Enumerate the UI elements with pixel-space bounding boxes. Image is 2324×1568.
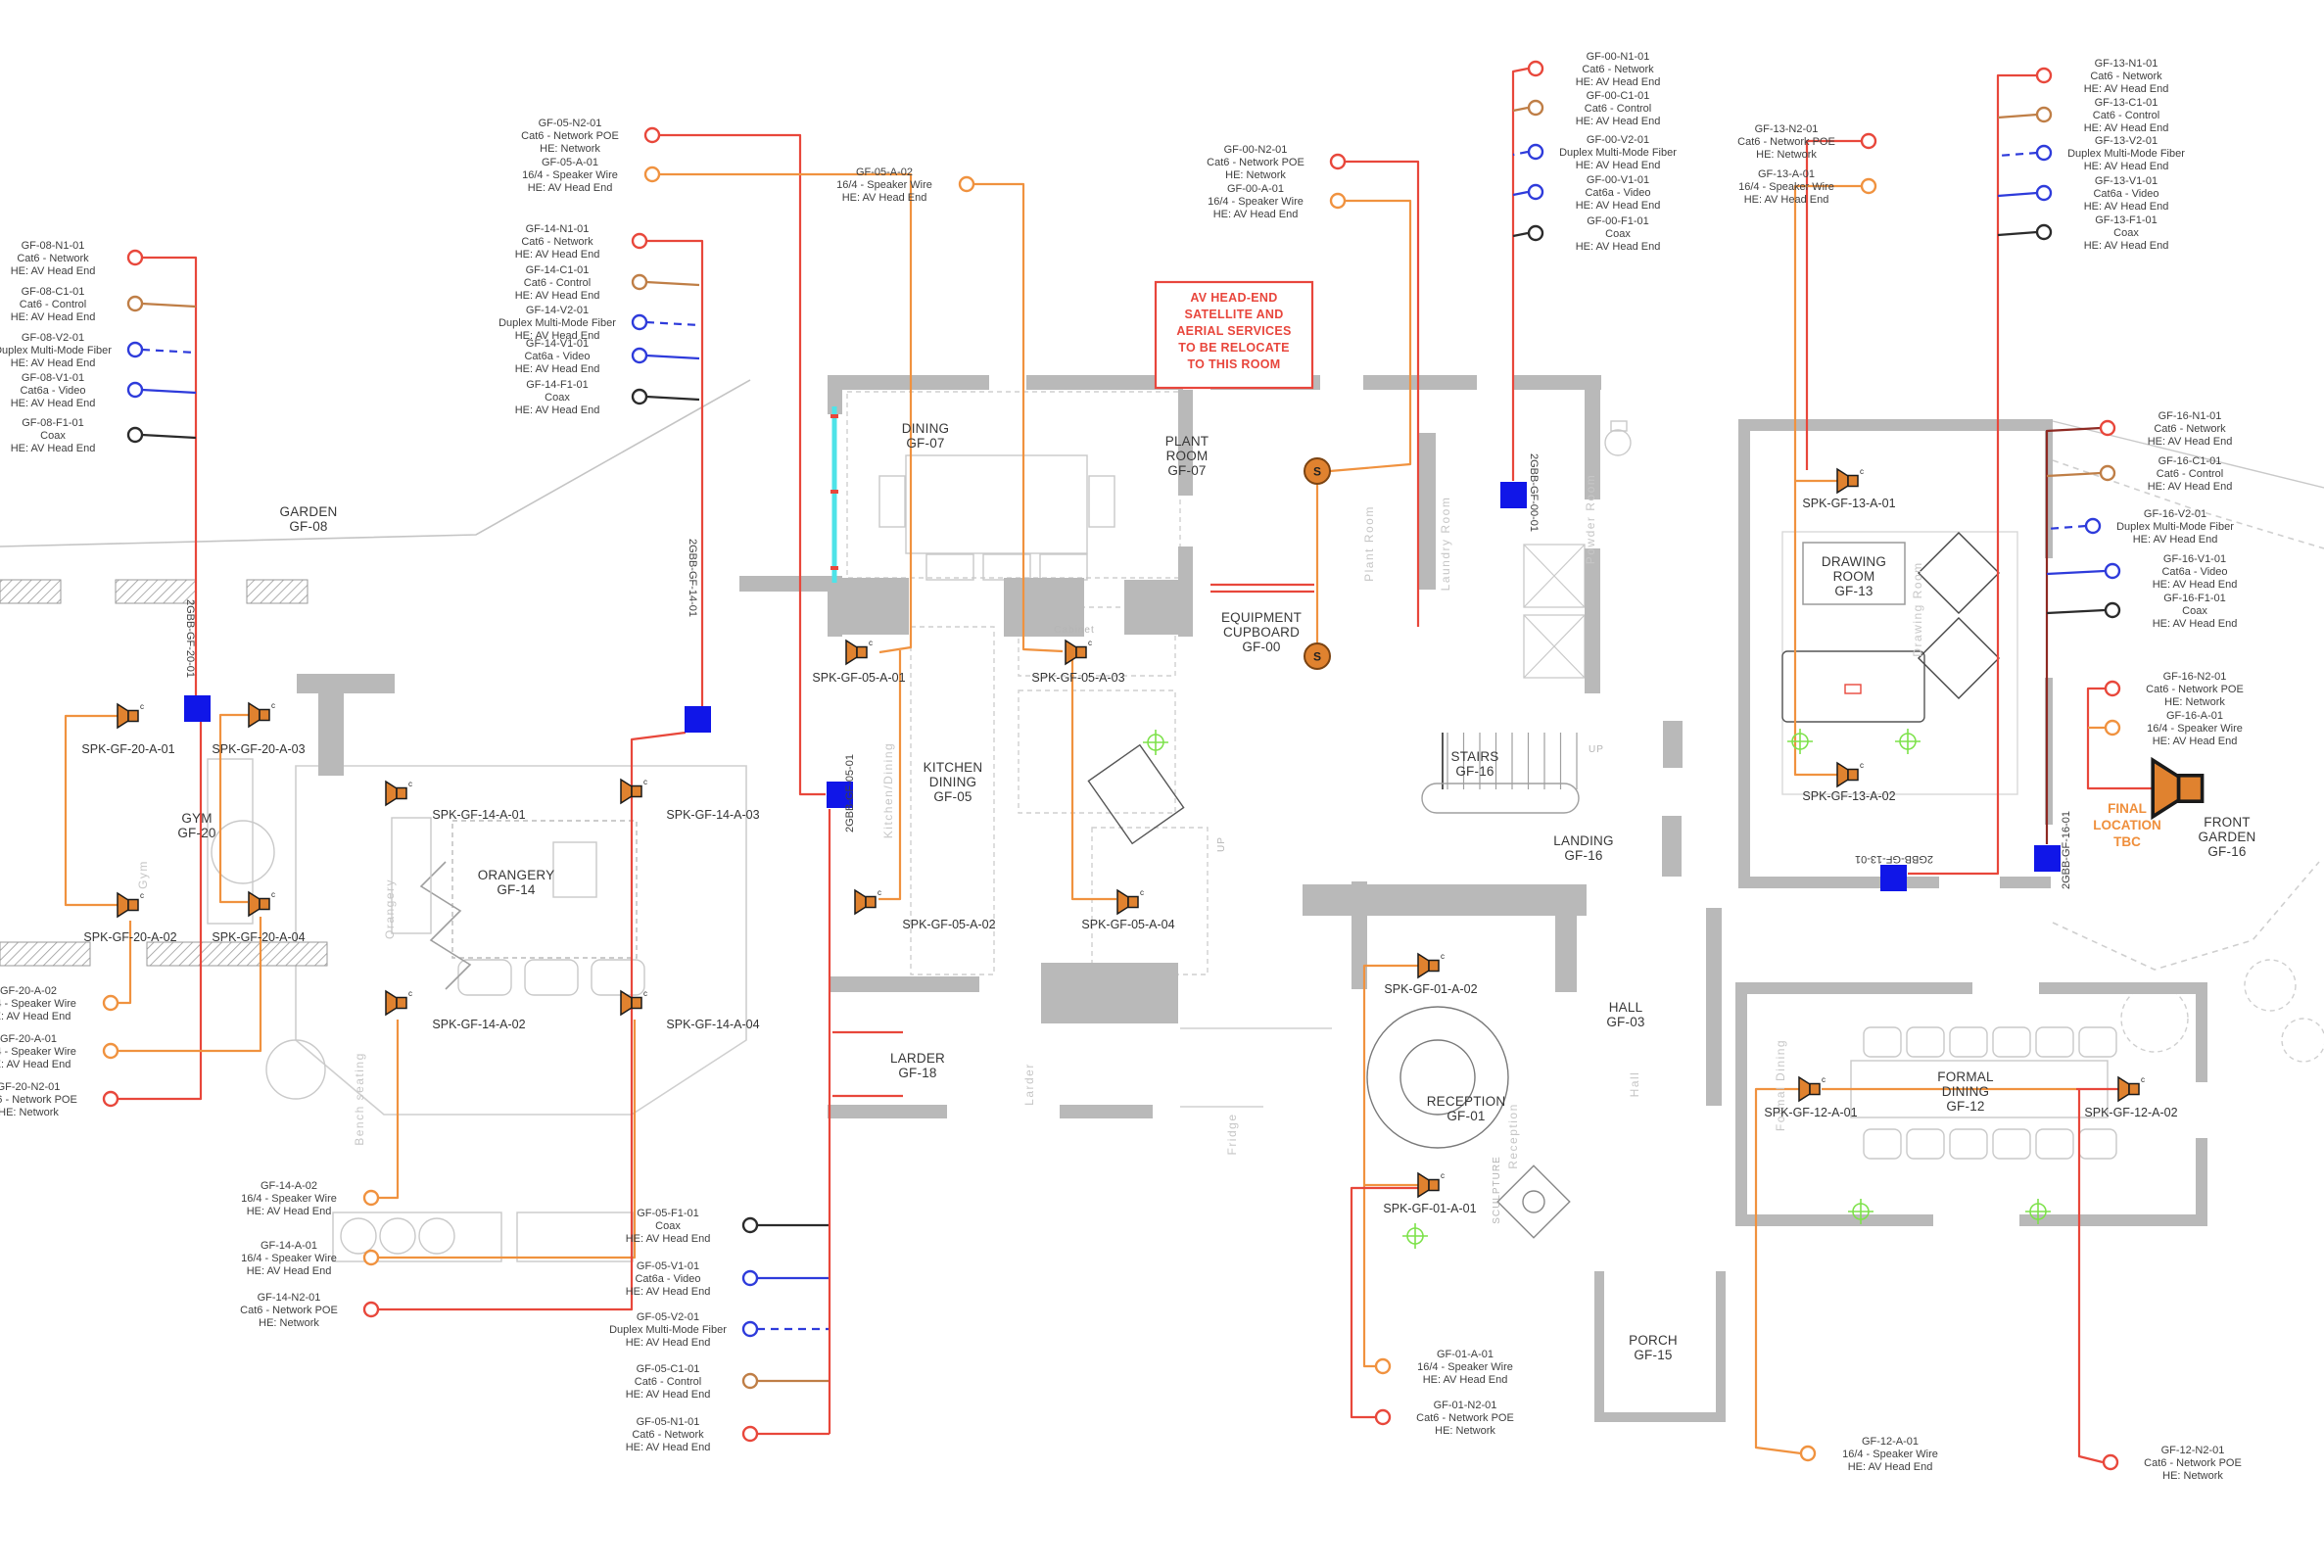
wall (739, 576, 842, 592)
cable-headend: HE: AV Head End (626, 1233, 711, 1245)
room-label: GF-15 (1634, 1348, 1672, 1362)
speaker-icon (1418, 1173, 1439, 1197)
hatch-wall (0, 942, 90, 966)
cable-circle (633, 349, 646, 362)
room-label: GYM (181, 811, 212, 826)
speaker-horn (249, 892, 260, 916)
note-av-headend-line: AV HEAD-END (1190, 291, 1277, 305)
room-label: LANDING (1553, 833, 1613, 848)
cable-type: 16/4 - Speaker Wire (836, 179, 932, 191)
room-label: HALL (1609, 1000, 1643, 1015)
speaker-back (128, 900, 138, 911)
furniture (1605, 430, 1631, 455)
room-label: DRAWING (1822, 554, 1886, 569)
cable-circle (364, 1303, 378, 1316)
cable-id: GF-00-V2-01 (1587, 134, 1649, 146)
furniture (0, 380, 750, 546)
room-label: PLANT (1165, 434, 1209, 449)
cable-wire-brown (142, 304, 196, 307)
window-tick (830, 414, 838, 418)
speaker-icon (386, 991, 406, 1015)
wall (1513, 375, 1601, 390)
vertical-room-label: Gym (136, 860, 150, 889)
cable-circle (633, 234, 646, 248)
furniture (1845, 685, 1861, 693)
wall (1716, 1271, 1726, 1420)
speaker-c-tag: c (869, 639, 873, 647)
speaker-icon (249, 703, 269, 727)
speaker-back (397, 998, 406, 1009)
cable-headend: HE: Network (540, 143, 600, 155)
speaker-c-tag: c (140, 702, 144, 711)
furniture (906, 455, 1087, 553)
speaker-icon (1837, 763, 1858, 786)
speaker-back (1848, 476, 1858, 487)
cable-type: Cat6 - Control (524, 277, 591, 289)
cable-id: GF-14-C1-01 (526, 264, 590, 276)
cable-wire-brown (646, 282, 699, 285)
furniture (452, 821, 637, 958)
cable-wire-red (1346, 162, 1418, 627)
speaker-icon (1799, 1077, 1820, 1101)
furniture-chair (2036, 1129, 2073, 1159)
room-label: GF-07 (1167, 463, 1206, 478)
cable-headend: HE: AV Head End (2148, 436, 2233, 448)
furniture (208, 759, 253, 924)
cable-circle (743, 1374, 757, 1388)
cable-type: Coax (2182, 605, 2207, 617)
cable-headend: HE: Network (259, 1317, 319, 1329)
speaker-horn (621, 780, 632, 803)
cable-type: Coax (40, 430, 66, 442)
room-label: STAIRS (1451, 749, 1499, 764)
satellite-label: S (1313, 465, 1321, 479)
cable-type: Cat6 - Control (1585, 103, 1651, 115)
speaker-back (1810, 1084, 1820, 1095)
network-point-label: 2GBB-GF-20-01 (184, 599, 196, 678)
speaker-label: SPK-GF-13-A-01 (1802, 497, 1895, 510)
cable-type: Cat6a - Video (20, 385, 85, 397)
cable-circle (104, 1044, 118, 1058)
cable-type: Cat6a - Video (2093, 188, 2158, 200)
cable-type: Cat6a - Video (524, 351, 590, 362)
cable-id: GF-14-A-01 (261, 1240, 317, 1252)
cable-type: Cat6 - Control (635, 1376, 701, 1388)
vertical-room-label: Hall (1628, 1071, 1641, 1098)
cable-wire-bluedash (646, 322, 699, 325)
wall (1060, 1105, 1153, 1118)
cable-headend: HE: AV Head End (626, 1286, 711, 1298)
cable-type: Cat6 - Control (2093, 110, 2159, 121)
satellite-label: S (1313, 650, 1321, 664)
cable-id: GF-14-F1-01 (526, 379, 589, 391)
furniture (2053, 862, 2319, 970)
cable-headend: HE: AV Head End (11, 398, 96, 409)
cable-headend: HE: AV Head End (2148, 481, 2233, 493)
speaker-label: SPK-GF-01-A-01 (1383, 1202, 1476, 1215)
cable-type: Cat6a - Video (2161, 566, 2227, 578)
cable-id: GF-13-A-01 (1758, 168, 1815, 180)
cable-id: GF-13-V1-01 (2095, 175, 2158, 187)
cable-type: Cat6 - Network POE (2144, 1457, 2242, 1469)
network-point-label: 2GBB-GF-05-01 (844, 754, 856, 832)
furniture (458, 960, 511, 995)
speaker-back (1429, 961, 1439, 972)
cable-id: GF-08-C1-01 (22, 286, 85, 298)
vertical-room-label: Reception (1506, 1103, 1520, 1169)
floor-plan-svg: GymOrangeryKitchen/DiningBench seatingLa… (0, 0, 2324, 1568)
cable-headend: HE: AV Head End (515, 290, 600, 302)
speaker-back (632, 998, 641, 1009)
cable-id: GF-16-A-01 (2166, 710, 2223, 722)
cable-circle (2106, 603, 2119, 617)
cable-headend: HE: AV Head End (1576, 116, 1661, 127)
cable-id: GF-05-F1-01 (637, 1208, 699, 1219)
furniture (2245, 960, 2296, 1011)
speaker-horn (386, 991, 397, 1015)
cable-circle (2101, 421, 2114, 435)
speaker-horn (1117, 890, 1128, 914)
wall (1735, 1214, 1933, 1226)
speaker-back (397, 788, 406, 799)
speaker-horn (1837, 469, 1848, 493)
cable-id: GF-20-N2-01 (0, 1081, 60, 1093)
cable-wire-brown (1513, 108, 1528, 111)
cable-circle (1801, 1447, 1815, 1460)
cable-type: Cat6 - Network POE (1416, 1412, 1514, 1424)
speaker-back (260, 710, 269, 721)
speaker-label: SPK-GF-12-A-01 (1764, 1106, 1857, 1119)
speaker-back (1848, 770, 1858, 781)
cable-wire-black (1998, 232, 2037, 235)
cable-headend: HE: AV Head End (1576, 76, 1661, 88)
cable-wire-blue (2047, 571, 2105, 574)
cable-wire-black (646, 397, 699, 400)
cable-wire-black (142, 435, 196, 438)
cable-circle (2106, 682, 2119, 695)
furniture (1523, 1191, 1544, 1212)
window-tick (830, 490, 838, 494)
furniture (1019, 690, 1175, 813)
cable-type: Duplex Multi-Mode Fiber (2067, 148, 2185, 160)
cable-headend: HE: AV Head End (2084, 161, 2169, 172)
furniture (1040, 554, 1087, 580)
furniture (525, 960, 578, 995)
cable-id: GF-20-A-01 (0, 1033, 57, 1045)
room-label: GF-00 (1242, 640, 1280, 654)
cable-id: GF-16-N1-01 (2158, 410, 2222, 422)
speaker-c-tag: c (271, 701, 275, 710)
cable-type: Coax (2113, 227, 2139, 239)
furniture (592, 960, 644, 995)
window-tick (830, 566, 838, 570)
cable-type: 16/4 - Speaker Wire (1738, 181, 1834, 193)
cable-headend: HE: AV Head End (0, 1059, 71, 1070)
room-label: GF-01 (1447, 1109, 1485, 1123)
room-label: PORCH (1629, 1333, 1678, 1348)
cable-type: 16/4 - Speaker Wire (0, 1046, 76, 1058)
cable-id: GF-05-N1-01 (637, 1416, 700, 1428)
cable-headend: HE: Network (2164, 696, 2225, 708)
room-label: DINING (929, 775, 976, 789)
cable-id: GF-13-C1-01 (2095, 97, 2158, 109)
cable-circle (1376, 1359, 1390, 1373)
speaker-c-tag: c (643, 778, 647, 786)
cable-type: 16/4 - Speaker Wire (0, 998, 76, 1010)
furniture-chair (1907, 1129, 1944, 1159)
cable-circle (1376, 1410, 1390, 1424)
vertical-room-label: Powder Room (1584, 474, 1597, 565)
speaker-icon (2153, 760, 2202, 817)
cable-headend: HE: AV Head End (247, 1265, 332, 1277)
cable-id: GF-14-A-02 (261, 1180, 317, 1192)
speaker-label: SPK-GF-14-A-01 (432, 808, 525, 822)
room-label: DINING (902, 421, 949, 436)
furniture-chair (1950, 1129, 1987, 1159)
speaker-icon (1837, 469, 1858, 493)
cable-circle (2037, 108, 2051, 121)
furniture (1089, 476, 1115, 527)
room-label: GF-12 (1946, 1099, 1984, 1114)
speaker-label: SPK-GF-20-A-01 (81, 742, 174, 756)
cable-headend: HE: Network (1435, 1425, 1495, 1437)
room-label: DINING (1942, 1084, 1989, 1099)
cable-circle (2104, 1455, 2117, 1469)
cable-headend: HE: AV Head End (1213, 209, 1299, 220)
speaker-icon (249, 892, 269, 916)
cable-id: GF-00-N2-01 (1224, 144, 1288, 156)
cable-wire-orange (1364, 966, 1418, 1366)
cable-circle (743, 1271, 757, 1285)
wall (2000, 877, 2051, 888)
vertical-room-label: SCULPTURE (1492, 1156, 1502, 1224)
cable-id: GF-20-A-02 (0, 985, 57, 997)
furniture (266, 1040, 325, 1099)
cable-id: GF-00-C1-01 (1587, 90, 1650, 102)
network-point-label: 2GBB-GF-14-01 (687, 539, 698, 617)
room-label: ROOM (1833, 569, 1875, 584)
cable-wire-red (659, 135, 826, 794)
room-label: GF-14 (497, 882, 536, 897)
cable-circle (128, 297, 142, 310)
hatch-wall (116, 580, 196, 603)
cable-wire-blue (1998, 193, 2037, 196)
room-label: GARDEN (2199, 830, 2256, 844)
cable-id: GF-16-C1-01 (2158, 455, 2222, 467)
cable-id: GF-14-V2-01 (526, 305, 589, 316)
network-point (184, 695, 211, 722)
vertical-room-label: Larder (1022, 1063, 1036, 1106)
cable-wire-bluedash (1998, 153, 2037, 156)
cable-headend: HE: AV Head End (2133, 534, 2218, 546)
wall (830, 976, 979, 992)
vertical-room-label: UP (1589, 744, 1604, 755)
cable-headend: HE: AV Head End (2084, 201, 2169, 213)
cable-id: GF-00-F1-01 (1587, 215, 1649, 227)
cable-id: GF-08-V2-01 (22, 332, 84, 344)
vertical-room-label: Bench seating (353, 1052, 366, 1146)
furniture-chair (2079, 1027, 2116, 1057)
furniture (1919, 618, 1999, 698)
speaker-c-tag: c (1860, 467, 1864, 476)
furniture (2282, 1019, 2324, 1062)
cable-headend: HE: AV Head End (1576, 200, 1661, 212)
cable-type: Cat6 - Network (17, 253, 89, 264)
cable-id: GF-05-V1-01 (637, 1260, 699, 1272)
cable-wire-red (2088, 689, 2159, 788)
cable-id: GF-13-F1-01 (2095, 214, 2158, 226)
furniture (419, 1218, 454, 1254)
furniture (1092, 828, 1208, 974)
cable-id: GF-16-N2-01 (2163, 671, 2227, 683)
furniture (1919, 533, 1999, 613)
cable-headend: HE: AV Head End (2153, 736, 2238, 747)
cable-id: GF-14-V1-01 (526, 338, 589, 350)
speaker-label: SPK-GF-14-A-02 (432, 1018, 525, 1031)
wall (1594, 1271, 1604, 1420)
speaker-back (632, 786, 641, 797)
speaker-back (128, 711, 138, 722)
furniture (1422, 784, 1579, 813)
cable-id: GF-05-A-01 (542, 157, 598, 168)
cable-id: GF-14-N1-01 (526, 223, 590, 235)
speaker-label: SPK-GF-14-A-04 (666, 1018, 759, 1031)
cable-headend: HE: AV Head End (0, 1011, 71, 1022)
speaker-c-tag: c (408, 989, 412, 998)
speaker-icon (1418, 954, 1439, 977)
furniture (1088, 745, 1183, 844)
cable-id: GF-14-N2-01 (258, 1292, 321, 1304)
cable-circle (364, 1191, 378, 1205)
cable-type: Coax (1605, 228, 1631, 240)
speaker-label: SPK-GF-05-A-02 (902, 918, 995, 931)
cable-circle (1331, 155, 1345, 168)
speaker-back (1128, 897, 1138, 908)
vertical-room-label: Plant Room (1362, 505, 1376, 582)
speaker-label: SPK-GF-05-A-01 (812, 671, 905, 685)
speaker-horn (249, 703, 260, 727)
room-label: LARDER (890, 1051, 945, 1066)
furniture (1367, 1007, 1508, 1148)
wall (1706, 908, 1722, 1106)
cable-id: GF-01-N2-01 (1434, 1400, 1497, 1411)
vertical-room-label: Fridge (1225, 1113, 1239, 1155)
cable-circle (645, 167, 659, 181)
wall (1735, 982, 1972, 994)
furniture (847, 392, 1180, 578)
cable-headend: HE: AV Head End (1423, 1374, 1508, 1386)
cable-id: GF-08-N1-01 (22, 240, 85, 252)
cable-wire-orange (1756, 1089, 1801, 1453)
cable-headend: HE: Network (1756, 149, 1817, 161)
wall (828, 1105, 947, 1118)
room-label: ROOM (1166, 449, 1209, 463)
cable-circle (1862, 134, 1875, 148)
cable-circle (2037, 69, 2051, 82)
speaker-horn (1837, 763, 1848, 786)
cable-wire-blue (646, 356, 699, 358)
cable-circle (1529, 145, 1542, 159)
cable-headend: HE: AV Head End (515, 404, 600, 416)
network-point-label: 2GBB-GF-00-01 (1528, 453, 1540, 532)
cable-headend: HE: AV Head End (1744, 194, 1829, 206)
speaker-horn (1418, 1173, 1429, 1197)
cable-id: GF-05-C1-01 (637, 1363, 700, 1375)
cable-circle (2106, 721, 2119, 735)
cable-wire-red (1352, 1188, 1418, 1417)
wall (828, 375, 989, 390)
speaker-c-tag: c (140, 891, 144, 900)
room-label: KITCHEN (924, 760, 983, 775)
cable-id: GF-00-N1-01 (1587, 51, 1650, 63)
furniture-chair (1950, 1027, 1987, 1057)
speaker-label: SPK-GF-13-A-02 (1802, 789, 1895, 803)
cable-headend: HE: AV Head End (626, 1337, 711, 1349)
speaker-back (260, 899, 269, 910)
furniture-chair (2036, 1027, 2073, 1057)
cable-wire-brown (1998, 115, 2037, 118)
speaker-c-tag: c (877, 888, 881, 897)
cable-headend: HE: AV Head End (2153, 579, 2238, 591)
wall (1418, 433, 1436, 590)
cable-circle (960, 177, 973, 191)
cable-circle (743, 1427, 757, 1441)
speaker-c-tag: c (1088, 639, 1092, 647)
speaker-back (2179, 776, 2203, 801)
cable-id: GF-05-V2-01 (637, 1311, 699, 1323)
note-av-headend-line: TO BE RELOCATE (1178, 341, 1289, 355)
cable-headend: HE: AV Head End (515, 249, 600, 261)
cable-type: Duplex Multi-Mode Fiber (498, 317, 616, 329)
cable-headend: HE: AV Head End (247, 1206, 332, 1217)
cable-wire-orange (1072, 650, 1116, 899)
cable-type: 16/4 - Speaker Wire (1842, 1449, 1938, 1460)
cable-headend: HE: AV Head End (528, 182, 613, 194)
cable-circle (743, 1322, 757, 1336)
cable-headend: HE: Network (0, 1107, 59, 1118)
speaker-back (866, 897, 876, 908)
vertical-room-label: Kitchen/Dining (881, 742, 895, 838)
cable-wire-bluedash (1513, 152, 1528, 155)
cable-type: Cat6a - Video (1585, 187, 1650, 199)
cable-wire-orange (379, 1020, 635, 1258)
cable-wire-black (1513, 233, 1528, 236)
speaker-label: SPK-GF-20-A-04 (212, 930, 305, 944)
cable-headend: HE: AV Head End (2084, 83, 2169, 95)
vertical-room-label: Orangery (383, 879, 397, 939)
speaker-icon (118, 893, 138, 917)
cable-circle (104, 996, 118, 1010)
speaker-label: SPK-GF-01-A-02 (1384, 982, 1477, 996)
vertical-room-label: Laundry Room (1439, 497, 1452, 592)
cable-headend: HE: AV Head End (842, 192, 927, 204)
cable-id: GF-13-N2-01 (1755, 123, 1819, 135)
cable-id: GF-00-V1-01 (1587, 174, 1649, 186)
cable-headend: HE: AV Head End (1576, 241, 1661, 253)
cable-circle (633, 275, 646, 289)
furniture-chair (2079, 1129, 2116, 1159)
furniture-chair (1993, 1129, 2030, 1159)
cable-circle (1529, 185, 1542, 199)
cable-circle (364, 1251, 378, 1264)
room-label: GF-16 (1564, 848, 1602, 863)
network-point-label: 2GBB-GF-13-01 (1855, 853, 1933, 865)
network-point (2034, 845, 2061, 872)
cable-circle (128, 251, 142, 264)
speaker-back (1429, 1180, 1439, 1191)
speaker-horn (118, 893, 128, 917)
wall (297, 674, 395, 693)
